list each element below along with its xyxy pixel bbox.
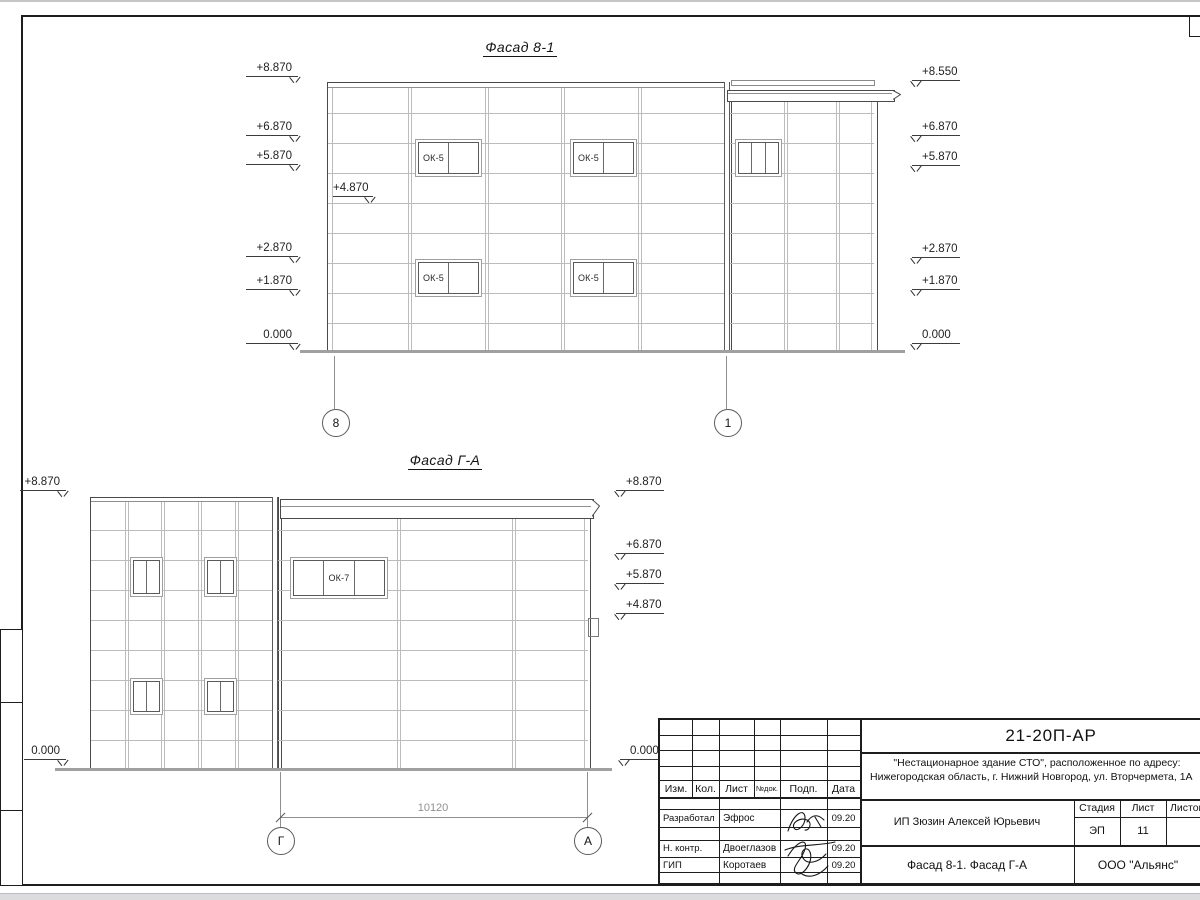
- project-description-line2: Нижегородская область, г. Нижний Новгоро…: [870, 770, 1200, 784]
- facade81-title: Фасад 8-1: [450, 39, 590, 57]
- facadeGA-section-wall-edge: [272, 497, 278, 769]
- window-label: ОК-7: [324, 561, 354, 595]
- row-name: Коротаев: [723, 857, 781, 874]
- sheet-header: Лист: [1120, 799, 1166, 817]
- facade81-left-edge-inner-line: [332, 88, 333, 351]
- title-block-line: [660, 797, 860, 799]
- elevation-arrow-icon: [58, 760, 67, 768]
- window-pane: [134, 682, 147, 711]
- elevation-mark: +2.870: [912, 243, 960, 258]
- facade81-title-text: Фасад 8-1: [483, 39, 556, 57]
- elevation-mark: +1.870: [246, 275, 298, 290]
- elevation-arrow-icon: [290, 165, 299, 173]
- elevation-mark: +5.870: [616, 569, 664, 584]
- window-ok5: ОК-5: [415, 139, 482, 177]
- facadeGA-ground-line: [55, 768, 612, 772]
- window-ok5: ОК-5: [570, 259, 637, 297]
- elevation-mark: +2.870: [246, 242, 298, 257]
- elevation-mark: 0.000: [912, 329, 960, 344]
- axis-bubble: Г: [267, 827, 295, 855]
- axis-leader-line: [726, 356, 727, 409]
- signature: [785, 805, 827, 839]
- elevation-value: +1.870: [246, 275, 298, 288]
- axis-bubble: 1: [714, 409, 742, 437]
- elevation-mark: +6.870: [246, 121, 298, 136]
- row-name: Эфрос: [723, 809, 779, 827]
- elevation-value: 0.000: [912, 329, 960, 342]
- dimension-line: [280, 817, 587, 818]
- elevation-value: +6.870: [616, 539, 664, 552]
- row-role: Н. контр.: [663, 840, 719, 857]
- window-pane: [449, 263, 478, 293]
- elevation-mark: 0.000: [24, 745, 66, 760]
- col-header-kol: Кол.: [692, 780, 719, 797]
- panel-joint-line: [638, 88, 642, 351]
- window-two-pane: [204, 557, 237, 597]
- project-description-line1: "Нестационарное здание СТО", расположенн…: [872, 756, 1200, 770]
- elevation-arrow-icon: [290, 344, 299, 352]
- elevation-value: +6.870: [912, 121, 960, 134]
- elevation-arrow-icon: [365, 197, 374, 205]
- facade81-canopy: [727, 90, 895, 102]
- facadeGA-downpipe-bracket: [588, 618, 599, 637]
- elevation-value: +5.870: [616, 569, 664, 582]
- window-two-pane: [204, 678, 237, 715]
- sheet-title: Фасад 8-1. Фасад Г-А: [860, 845, 1074, 885]
- elevation-mark: +5.870: [912, 151, 960, 166]
- elevation-arrow-icon: [911, 136, 920, 144]
- panel-joint-line: [125, 502, 129, 768]
- elevation-arrow-icon: [615, 614, 624, 622]
- facade81-ground-line: [300, 350, 905, 354]
- title-block-line: [660, 766, 860, 767]
- window-pane: [147, 682, 159, 711]
- frame-stamp-cell: [0, 810, 23, 886]
- row-role: ГИП: [663, 857, 719, 874]
- panel-joint-line: [161, 502, 165, 768]
- facade81-right-wall-outline: [731, 100, 878, 353]
- facade81-parapet-inner-line: [328, 87, 725, 88]
- window-pane: [147, 561, 159, 593]
- window-three-pane: [735, 139, 782, 177]
- row-role: Разработал: [663, 809, 719, 827]
- title-block-line: [660, 827, 860, 828]
- frame-stamp-cell: [0, 629, 23, 704]
- facadeGA-canopy: [280, 499, 594, 519]
- window-pane: [766, 143, 778, 173]
- window-pane: [294, 561, 324, 595]
- panel-joint-line: [561, 88, 565, 351]
- elevation-mark: +6.870: [616, 539, 664, 554]
- axis-bubble: А: [574, 827, 602, 855]
- elevation-mark: +5.870: [246, 150, 298, 165]
- doc-number: 21-20П-АР: [860, 720, 1200, 752]
- title-block-line: [1166, 799, 1167, 845]
- elevation-mark: +8.870: [20, 476, 66, 491]
- elevation-value: 0.000: [246, 329, 298, 342]
- window-pane: [208, 682, 221, 711]
- frame-line-top: [21, 15, 1200, 17]
- client-name: ИП Зюзин Алексей Юрьевич: [860, 799, 1074, 845]
- window-pane: [604, 143, 633, 173]
- elevation-arrow-icon: [290, 257, 299, 265]
- elevation-value: +8.870: [616, 476, 664, 489]
- elevation-value: +8.550: [912, 66, 960, 79]
- panel-joint-line: [836, 101, 840, 350]
- elevation-mark: +1.870: [912, 275, 960, 290]
- elevation-mark: +8.870: [246, 62, 298, 77]
- panel-joint-line: [512, 518, 516, 768]
- elevation-mark: +8.550: [912, 66, 960, 81]
- sheet-number: 11: [1120, 817, 1166, 845]
- elevation-mark: +6.870: [912, 121, 960, 136]
- facadeGA-right-edge-inner-line: [584, 518, 585, 769]
- window-pane: [208, 561, 221, 593]
- title-block-line: [660, 735, 860, 736]
- elevation-value: +4.870: [333, 182, 373, 195]
- axis-label: 8: [333, 416, 340, 430]
- facadeGA-canopy-tip: [592, 499, 600, 517]
- panel-joint-line: [784, 101, 788, 350]
- elevation-value: +6.870: [246, 121, 298, 134]
- panel-joint-line: [408, 88, 412, 351]
- facade81-canopy-inner-line: [728, 93, 892, 94]
- col-header-podp: Подп.: [780, 780, 827, 797]
- elevation-arrow-icon: [290, 77, 299, 85]
- title-block-line: [860, 752, 1200, 754]
- window-label: ОК-5: [574, 143, 604, 173]
- elevation-arrow-icon: [58, 491, 67, 499]
- elevation-arrow-icon: [290, 136, 299, 144]
- elevation-value: +4.870: [616, 599, 664, 612]
- col-header-izm: Изм.: [660, 780, 692, 797]
- window-pane: [355, 561, 384, 595]
- window-two-pane: [130, 557, 163, 597]
- facade81-axis1-wall-edge: [724, 82, 730, 351]
- panel-joint-line: [235, 502, 239, 768]
- window-pane: [449, 143, 478, 173]
- sheets-header: Листов: [1170, 799, 1200, 817]
- axis-leader-line: [334, 356, 335, 409]
- elevation-arrow-icon: [619, 760, 628, 768]
- elevation-arrow-icon: [911, 344, 920, 352]
- window-pane: [752, 143, 765, 173]
- window-label: ОК-5: [419, 143, 449, 173]
- window-ok5: ОК-5: [570, 139, 637, 177]
- facadeGA-right-wall-outline: [281, 517, 591, 771]
- panel-joint-line: [397, 518, 401, 768]
- elevation-mark: 0.000: [246, 329, 298, 344]
- window-label: ОК-5: [574, 263, 604, 293]
- title-block-line: [660, 750, 860, 751]
- signature: [782, 836, 838, 884]
- facade81-left-wall-outline: [327, 82, 728, 353]
- elevation-arrow-icon: [615, 584, 624, 592]
- title-block: 21-20П-АР "Нестационарное здание СТО", р…: [658, 718, 1200, 885]
- facadeGA-canopy-inner-line: [281, 506, 591, 507]
- panel-joint-line: [485, 88, 489, 351]
- row-name: Двоеглазов: [723, 840, 781, 857]
- elevation-mark: +8.870: [616, 476, 664, 491]
- axis-bubble: 8: [322, 409, 350, 437]
- elevation-value: +8.870: [246, 62, 298, 75]
- frame-corner-box-line-h: [1189, 36, 1200, 37]
- facade81-right-edge-inner-line: [871, 101, 872, 351]
- window-ok5: ОК-5: [415, 259, 482, 297]
- window-pane: [134, 561, 147, 593]
- elevation-arrow-icon: [615, 491, 624, 499]
- facadeGA-parapet-inner-line: [91, 501, 276, 502]
- window-pane: [221, 682, 233, 711]
- window-label: ОК-5: [419, 263, 449, 293]
- axis-label: 1: [725, 416, 732, 430]
- screen-top-strip: [0, 0, 1200, 2]
- elevation-value: +2.870: [912, 243, 960, 256]
- elevation-value: +8.870: [20, 476, 66, 489]
- col-header-data: Дата: [827, 780, 860, 797]
- facade81-canopy-tip: [893, 90, 901, 100]
- axis-label: Г: [278, 834, 285, 848]
- dimension-value: 10120: [398, 802, 468, 814]
- elevation-arrow-icon: [911, 81, 920, 89]
- elevation-arrow-icon: [911, 290, 920, 298]
- facade81-annex-parapet-band: [731, 80, 875, 86]
- elevation-mark: +4.870: [333, 182, 373, 197]
- window-two-pane: [130, 678, 163, 715]
- window-ok7: ОК-7: [290, 557, 388, 599]
- elevation-arrow-icon: [911, 166, 920, 174]
- elevation-arrow-icon: [911, 258, 920, 266]
- facadeGA-title-text: Фасад Г-А: [408, 452, 483, 470]
- company-name: ООО "Альянс": [1074, 845, 1200, 885]
- axis-label: А: [584, 834, 592, 848]
- elevation-value: +1.870: [912, 275, 960, 288]
- frame-stamp-cell: [0, 702, 23, 812]
- window-pane: [221, 561, 233, 593]
- title-block-line: [719, 720, 720, 883]
- elevation-value: +2.870: [246, 242, 298, 255]
- elevation-value: 0.000: [24, 745, 66, 758]
- col-header-ndok: №док.: [754, 780, 780, 797]
- facadeGA-left-wall-outline: [90, 497, 279, 771]
- stage-header: Стадия: [1074, 799, 1120, 817]
- frame-corner-box-line-v: [1189, 15, 1190, 36]
- panel-joint-line: [198, 502, 202, 768]
- elevation-arrow-icon: [615, 554, 624, 562]
- window-pane: [739, 143, 752, 173]
- elevation-mark: +4.870: [616, 599, 664, 614]
- elevation-value: +5.870: [246, 150, 298, 163]
- elevation-arrow-icon: [290, 290, 299, 298]
- elevation-value: +5.870: [912, 151, 960, 164]
- screen-bottom-strip: [0, 893, 1200, 900]
- drawing-sheet: { "colors": { "outline": "#4a4a4a", "joi…: [0, 0, 1200, 900]
- stage-value: ЭП: [1074, 817, 1120, 845]
- col-header-list: Лист: [719, 780, 754, 797]
- row-date: 09.20: [827, 809, 860, 827]
- window-pane: [604, 263, 633, 293]
- facadeGA-title: Фасад Г-А: [380, 452, 510, 470]
